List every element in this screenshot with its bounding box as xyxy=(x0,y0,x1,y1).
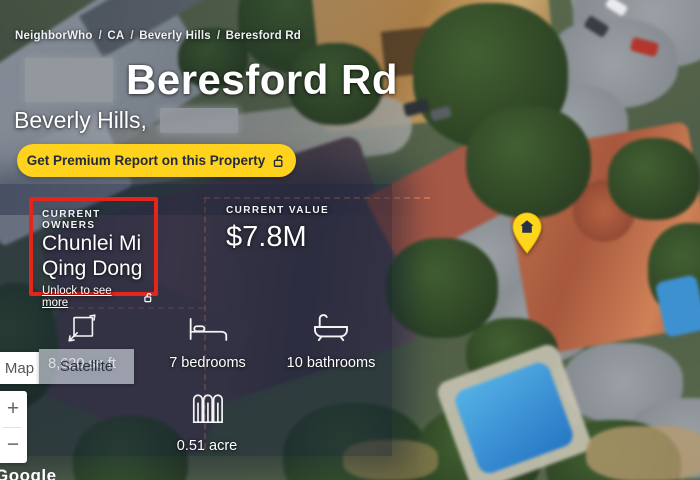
owner-name: Qing Dong xyxy=(42,256,154,281)
premium-report-button[interactable]: Get Premium Report on this Property xyxy=(17,144,296,177)
zoom-in-button[interactable]: + xyxy=(0,391,27,427)
unlock-link-label: Unlock to see more xyxy=(42,285,139,309)
zoom-out-button[interactable]: − xyxy=(0,428,27,464)
stat-lot-size: 0.51 acre xyxy=(158,390,256,454)
bath-icon xyxy=(312,311,350,348)
owners-label: CURRENT OWNERS xyxy=(42,209,154,231)
city-label: Beverly Hills, xyxy=(14,107,147,134)
google-attribution: Google xyxy=(0,466,57,480)
page-title: Beresford Rd xyxy=(126,56,398,104)
current-value-block: CURRENT VALUE $7.8M xyxy=(226,205,329,254)
property-map-pin[interactable] xyxy=(512,212,542,259)
bed-icon xyxy=(187,315,229,348)
current-owners-box: CURRENT OWNERS Chunlei Mi Qing Dong Unlo… xyxy=(29,197,158,296)
stat-bedrooms: 7 bedrooms xyxy=(150,315,265,371)
unlock-to-see-more-link[interactable]: Unlock to see more xyxy=(42,285,154,309)
premium-report-label: Get Premium Report on this Property xyxy=(27,153,266,168)
breadcrumb-item-beresford-rd[interactable]: Beresford Rd xyxy=(226,30,301,42)
tree xyxy=(386,238,498,338)
breadcrumb-item-ca[interactable]: CA xyxy=(107,30,124,42)
city-line: Beverly Hills, xyxy=(14,107,238,134)
map-view-label: Map xyxy=(5,360,34,377)
dirt-patch xyxy=(586,426,700,480)
satellite-view-button[interactable]: Satellite xyxy=(39,349,134,384)
lot-size-value: 0.51 acre xyxy=(177,438,237,454)
map-view-button[interactable]: Map xyxy=(0,352,39,384)
bathrooms-value: 10 bathrooms xyxy=(287,355,376,371)
sqft-icon xyxy=(66,312,98,349)
breadcrumb-separator: / xyxy=(130,30,133,42)
bedrooms-value: 7 bedrooms xyxy=(169,355,246,371)
owner-name: Chunlei Mi xyxy=(42,231,154,256)
property-page: NeighborWho/ CA/ Beverly Hills/ Beresfor… xyxy=(0,0,700,480)
redacted-zip xyxy=(160,108,238,133)
map-zoom-control: + − xyxy=(0,391,27,463)
breadcrumb-item-neighborwho[interactable]: NeighborWho xyxy=(15,30,93,42)
breadcrumb: NeighborWho/ CA/ Beverly Hills/ Beresfor… xyxy=(15,30,305,42)
fence-icon xyxy=(190,390,224,431)
unlock-icon xyxy=(272,154,286,168)
stat-bathrooms: 10 bathrooms xyxy=(270,311,392,371)
value-amount: $7.8M xyxy=(226,221,329,254)
breadcrumb-separator: / xyxy=(99,30,102,42)
page-title-row: Beresford Rd xyxy=(25,56,398,104)
breadcrumb-item-beverly-hills[interactable]: Beverly Hills xyxy=(139,30,211,42)
value-label: CURRENT VALUE xyxy=(226,205,329,216)
unlock-icon xyxy=(143,292,154,303)
breadcrumb-separator: / xyxy=(217,30,220,42)
satellite-view-label: Satellite xyxy=(60,358,113,375)
redacted-house-number xyxy=(25,58,113,102)
